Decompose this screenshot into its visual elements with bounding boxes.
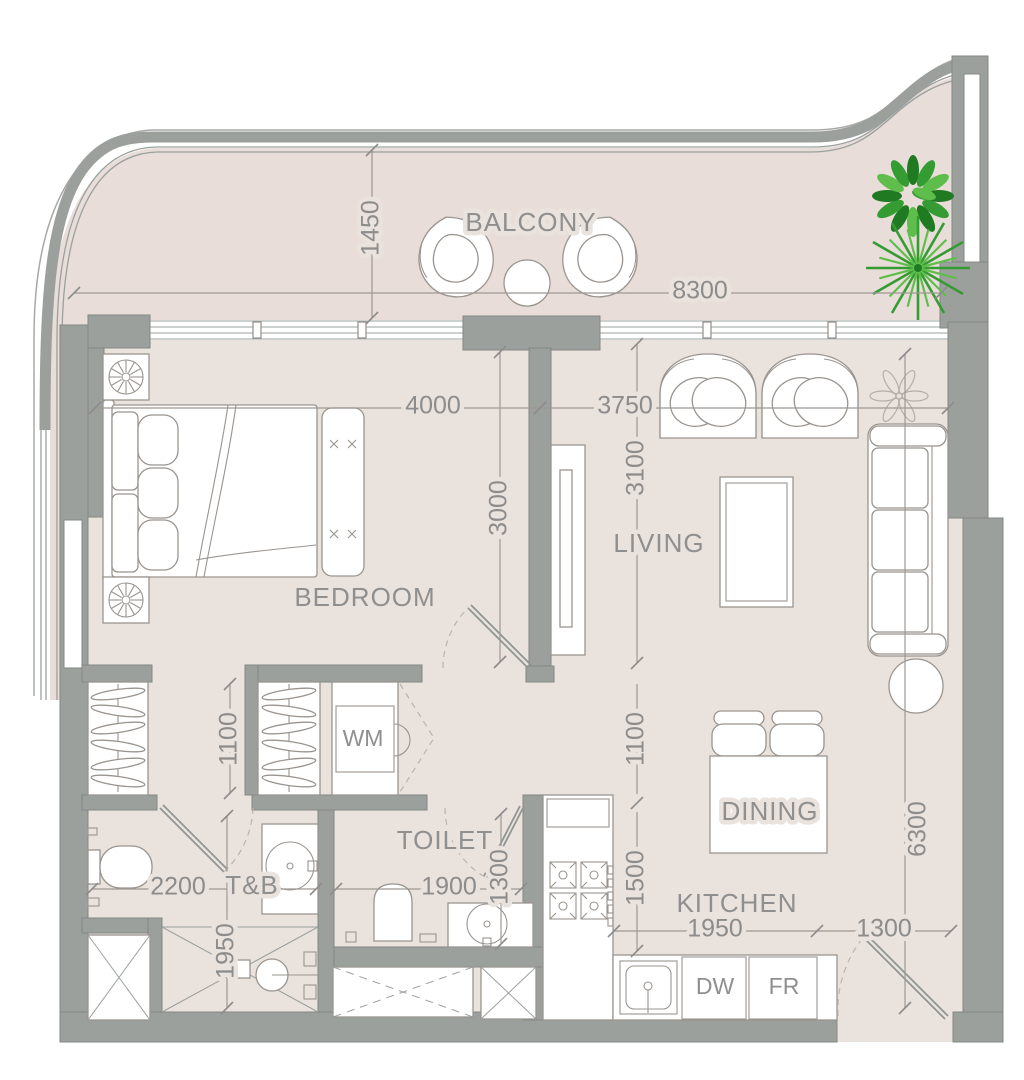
wall-closet-top-a	[82, 665, 152, 682]
dim-text-closet-nook: 1100	[215, 712, 243, 766]
dim-text-kitchen-depth: 1500	[622, 850, 650, 906]
dim-text-kitchen-width: 1950	[687, 915, 743, 943]
wall-right-upper	[948, 322, 988, 518]
dim-text-toilet-width: 1900	[421, 873, 477, 901]
coffee-table	[720, 477, 793, 607]
bed-bench	[322, 408, 364, 576]
kitchen-tall-counter	[543, 795, 613, 1020]
window-mullion	[828, 322, 836, 338]
shaft-small	[481, 967, 536, 1019]
wall-bedroom-door-cap	[526, 666, 554, 682]
appliance-label-wm: WM	[343, 725, 384, 751]
balcony-table	[504, 260, 550, 306]
side-table	[889, 659, 943, 713]
wall-bedroom-living	[529, 348, 551, 668]
nightstand-top	[103, 354, 149, 400]
dim-text-living-depth: 3100	[622, 440, 650, 496]
dim-text-balcony-depth: 1450	[357, 200, 385, 256]
wall-tb-toilet-divider	[318, 810, 334, 1012]
wall-window-left-pier	[88, 315, 150, 348]
right-side-window	[964, 74, 980, 262]
toilet-vanity	[448, 903, 533, 947]
wall-left-pier	[88, 325, 104, 517]
wall-closet-bottom-b	[252, 795, 427, 810]
dim-text-shower-depth: 1950	[212, 923, 240, 979]
armchair-right	[762, 354, 858, 438]
appliance-label-dw: DW	[696, 973, 735, 999]
wall-right-corner	[940, 262, 988, 328]
dim-text-living-width: 3750	[597, 392, 653, 420]
nightstand-bottom	[103, 577, 149, 623]
shaft-left	[88, 935, 150, 1020]
window-mullion	[358, 322, 366, 338]
sofa	[868, 424, 948, 656]
shaft-middle	[333, 967, 473, 1017]
room-label-tb: T&B	[225, 870, 279, 900]
wall-bottom-right	[953, 1012, 1003, 1042]
wall-closet-divider	[245, 665, 258, 795]
wall-below-bath	[334, 947, 543, 967]
tv-console	[551, 445, 585, 655]
room-label-dining: DINING	[722, 796, 819, 826]
window-mullion	[703, 322, 711, 338]
bed	[103, 400, 317, 582]
dim-text-bedroom-depth: 3000	[485, 480, 513, 536]
wall-window-mid-pier	[463, 316, 600, 350]
entry-threshold	[837, 1012, 953, 1042]
wall-closet-top-b	[258, 665, 422, 682]
dim-text-living-length: 6300	[904, 801, 932, 857]
room-label-kitchen: KITCHEN	[676, 888, 797, 918]
window-mullion	[253, 322, 261, 338]
room-label-living: LIVING	[613, 528, 704, 558]
dim-text-entry-width: 1300	[856, 915, 912, 943]
wall-right-lower	[963, 518, 1003, 1042]
room-label-toilet: TOILET	[397, 825, 494, 855]
dim-text-toilet-depth: 1300	[486, 849, 514, 905]
armchair-left	[660, 354, 756, 438]
dim-text-tb-width: 2200	[150, 873, 206, 901]
wall-above-shaft	[82, 918, 148, 933]
dim-text-bedroom-width: 4000	[405, 392, 461, 420]
room-label-balcony: BALCONY	[465, 207, 596, 237]
floor-plan: 1450 8300 4000 3750 3000 3100 1100 1500 …	[0, 0, 1024, 1080]
dim-text-facade-width: 8300	[672, 277, 728, 305]
room-label-bedroom: BEDROOM	[294, 582, 435, 612]
bedroom-side-window	[64, 520, 82, 668]
appliance-label-fr: FR	[769, 973, 800, 999]
dim-text-hall-depth: 1100	[622, 712, 650, 766]
wall-closet-bottom-a	[82, 795, 157, 810]
